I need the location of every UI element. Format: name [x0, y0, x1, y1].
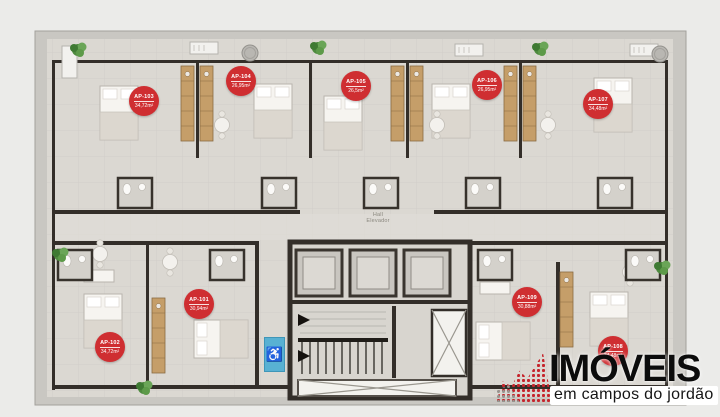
floor-plan-stage: Hall Elevador AP-101 30,94m² AP-102 34,7… [0, 0, 720, 417]
logo-title: IMÓVEIS [549, 350, 700, 388]
unit-area: 26,5m² [348, 88, 364, 94]
wheelchair-icon: ♿ [266, 346, 283, 363]
logo-fan-icon [496, 353, 552, 402]
bathroom [478, 250, 512, 280]
unit-id: AP-103 [134, 94, 154, 102]
unit-id: AP-109 [517, 295, 537, 303]
kitchen-cabinet [410, 66, 423, 141]
kitchen-cabinet [504, 66, 517, 141]
unit-id: AP-101 [189, 297, 209, 305]
unit-badge-ap-103: AP-103 34,72m² [129, 86, 159, 116]
bathroom [598, 178, 632, 208]
unit-badge-ap-106: AP-106 26,95m² [472, 70, 502, 100]
water-tank [242, 45, 258, 61]
sofa [480, 282, 510, 294]
unit-badge-ap-109: AP-109 30,88m² [512, 287, 542, 317]
bed [254, 84, 292, 138]
unit-area: 26,95m² [478, 87, 496, 93]
accessible-unit-marker: ♿ [264, 337, 285, 372]
bathroom [210, 250, 244, 280]
elevator-core [290, 242, 470, 398]
kitchen-cabinet [181, 66, 194, 141]
unit-area: 34,72m² [101, 349, 119, 355]
unit-badge-ap-102: AP-102 34,72m² [95, 332, 125, 362]
hall-label-line2: Elevador [352, 218, 404, 224]
unit-badge-ap-104: AP-104 26,95m² [226, 66, 256, 96]
water-tank [652, 46, 668, 62]
kitchen-cabinet [391, 66, 404, 141]
unit-area: 34,48m² [589, 106, 607, 112]
unit-badge-ap-101: AP-101 30,94m² [184, 289, 214, 319]
unit-area: 30,88m² [518, 304, 536, 310]
bathroom [118, 178, 152, 208]
unit-id: AP-105 [346, 79, 366, 87]
unit-id: AP-104 [231, 74, 251, 82]
unit-badge-ap-107: AP-107 34,48m² [583, 89, 613, 119]
bathroom [364, 178, 398, 208]
kitchen-cabinet [523, 66, 536, 141]
condenser-unit [190, 42, 218, 54]
bed [194, 320, 248, 358]
unit-badge-ap-105: AP-105 26,5m² [341, 71, 371, 101]
kitchen-cabinet [200, 66, 213, 141]
unit-id: AP-106 [477, 78, 497, 86]
hall-elevator-label: Hall Elevador [352, 212, 404, 225]
elevator-cab [296, 250, 342, 296]
unit-area: 26,95m² [232, 83, 250, 89]
unit-id: AP-107 [588, 97, 608, 105]
kitchen-cabinet [152, 298, 165, 373]
elevator-cab [350, 250, 396, 296]
bathroom [262, 178, 296, 208]
elevator-cab [404, 250, 450, 296]
unit-area: 30,94m² [190, 306, 208, 312]
unit-area: 34,72m² [135, 103, 153, 109]
kitchen-cabinet [560, 272, 573, 347]
logo-subtitle: em campos do jordão [550, 386, 718, 405]
bed [324, 96, 362, 150]
condenser-unit [455, 44, 483, 56]
bathroom [466, 178, 500, 208]
unit-id: AP-102 [100, 340, 120, 348]
